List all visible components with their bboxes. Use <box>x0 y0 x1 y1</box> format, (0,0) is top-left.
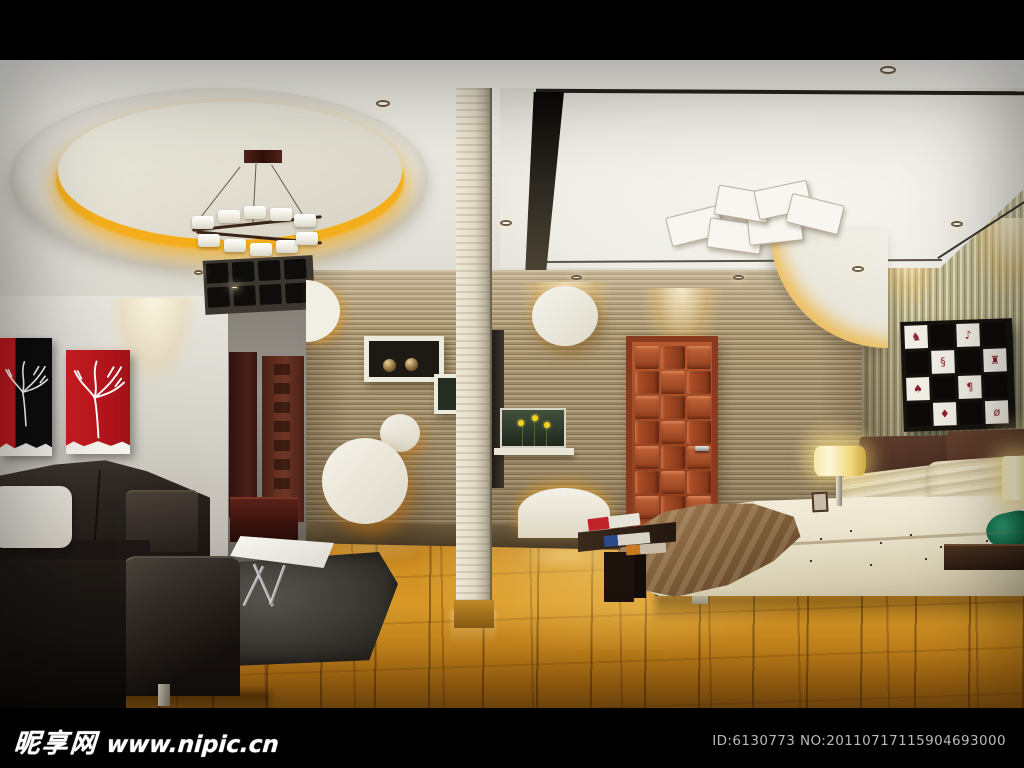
recessed-light <box>500 220 512 226</box>
ceiling-tile <box>207 287 230 308</box>
site-url: www.nipic.cn <box>106 732 280 758</box>
ceiling-tile <box>206 263 229 284</box>
artwork-cell: ♞ <box>904 325 928 349</box>
recessed-light <box>951 221 963 227</box>
letterbox-top <box>0 0 1024 60</box>
column-base <box>454 600 494 628</box>
ceiling-tile <box>285 282 308 303</box>
floating-nightstand-right <box>944 544 1024 570</box>
chandelier-cube <box>294 214 316 227</box>
artwork-cell: § <box>931 350 955 374</box>
door-panel-cell <box>635 421 659 444</box>
chandelier-cube <box>270 208 292 221</box>
door-panel-cell <box>687 396 711 419</box>
artwork-cell <box>984 374 1008 398</box>
artwork-cell <box>905 351 929 375</box>
tree-motif <box>2 343 50 440</box>
door-panel-cell <box>661 421 685 444</box>
flower-stem <box>522 424 523 446</box>
yellow-flower <box>532 415 538 421</box>
dark-red-cabinet <box>230 497 298 542</box>
artwork-cell: ♠ <box>906 377 930 401</box>
recessed-light <box>852 266 864 272</box>
wall-circle <box>532 286 598 346</box>
artwork-cell: ♪ <box>956 323 980 347</box>
door-panel-cell <box>661 446 685 469</box>
ceiling-tile <box>284 259 307 280</box>
artwork-cell: ♦ <box>933 402 957 426</box>
yellow-flower <box>518 420 524 426</box>
chandelier-cube <box>250 243 272 256</box>
recessed-light <box>880 66 896 74</box>
recessed-light <box>376 100 390 107</box>
artwork-cell <box>930 324 954 348</box>
artwork-cell <box>959 401 983 425</box>
door-panel-cell <box>661 371 685 394</box>
display-shelf <box>364 336 444 382</box>
flower-stem <box>546 426 547 446</box>
recessed-light <box>571 275 582 280</box>
recessed-light <box>733 275 744 280</box>
watermark-bar: 昵享网 www.nipic.cn ID:6130773 NO:201107171… <box>0 708 1024 768</box>
sofa-leg <box>158 684 170 706</box>
door-panel-cell <box>661 396 685 419</box>
door-inset-pattern <box>274 364 290 514</box>
paper-panel-ceiling-lamp <box>660 183 850 263</box>
door-panel-cell <box>635 371 659 394</box>
white-pillow <box>0 486 72 548</box>
sofa-chaise-arm <box>122 556 240 696</box>
door-handle <box>695 446 709 451</box>
display-ledge <box>494 448 574 455</box>
chandelier-cube <box>218 210 240 223</box>
door-panel-cell <box>687 346 711 369</box>
painting-wave-base <box>0 442 52 456</box>
decor-sphere <box>405 358 418 371</box>
bench-side <box>634 550 646 598</box>
artwork-cell: ¶ <box>958 375 982 399</box>
door-panel-cell <box>687 421 711 444</box>
door-panel-cell <box>661 346 685 369</box>
site-logo: 昵享网 www.nipic.cn <box>13 723 281 760</box>
chandelier-cube <box>276 240 298 253</box>
door-panel-cell <box>635 396 659 419</box>
artwork-cell <box>907 403 931 427</box>
painting-wave-base <box>66 440 130 454</box>
artwork-cell <box>957 349 981 373</box>
door-panel-cell <box>687 471 711 494</box>
flower-niche <box>500 408 566 448</box>
tree-motif <box>69 354 128 439</box>
decor-sphere <box>383 359 396 372</box>
flower-stem <box>534 420 535 446</box>
door-panel-cell <box>635 471 659 494</box>
artwork-cell: ♜ <box>983 348 1007 372</box>
door-panel-cell <box>687 371 711 394</box>
chandelier-cube <box>192 216 214 229</box>
door-panel-cell <box>661 471 685 494</box>
chandelier-cube <box>224 239 246 252</box>
recessed-light <box>194 270 203 275</box>
wall-half-dome <box>518 488 610 538</box>
checkerboard-artwork: ♞♪§♜♠¶♦ø <box>900 318 1016 432</box>
interior-render: ♞♪§♜♠¶♦ø <box>0 0 1024 768</box>
bench-leg <box>604 552 634 602</box>
wall-circle-big <box>322 438 408 524</box>
ceiling-tile <box>258 260 281 281</box>
yellow-flower <box>544 422 550 428</box>
corridor-door-left <box>229 352 257 518</box>
black-ceiling-tiles <box>203 255 316 315</box>
table-lamp-left <box>814 446 866 476</box>
chandelier-mount <box>244 150 282 163</box>
tree-painting-red <box>66 350 130 454</box>
chandelier-cube <box>198 234 220 247</box>
artwork-cell: ø <box>985 400 1009 424</box>
recessed-light <box>230 285 239 290</box>
door-panel-cell <box>635 346 659 369</box>
block-chandelier <box>190 150 330 260</box>
chandelier-cube <box>244 206 266 219</box>
ceiling-tile <box>232 261 255 282</box>
table-lamp-right <box>1002 456 1024 500</box>
artwork-cell <box>982 322 1006 346</box>
tree-painting-red-black <box>0 338 52 456</box>
sofa-front <box>0 560 126 710</box>
lamp-stem <box>836 476 842 506</box>
image-id-label: ID:6130773 NO:20110717115904693000 <box>712 733 1006 749</box>
photo-frame <box>811 492 828 513</box>
artwork-cell <box>932 376 956 400</box>
door-panel-cell <box>635 446 659 469</box>
room-divider-column <box>456 88 492 602</box>
site-name: 昵享网 <box>13 723 100 760</box>
chandelier-cube <box>296 232 318 245</box>
ceiling-tile <box>259 284 282 305</box>
